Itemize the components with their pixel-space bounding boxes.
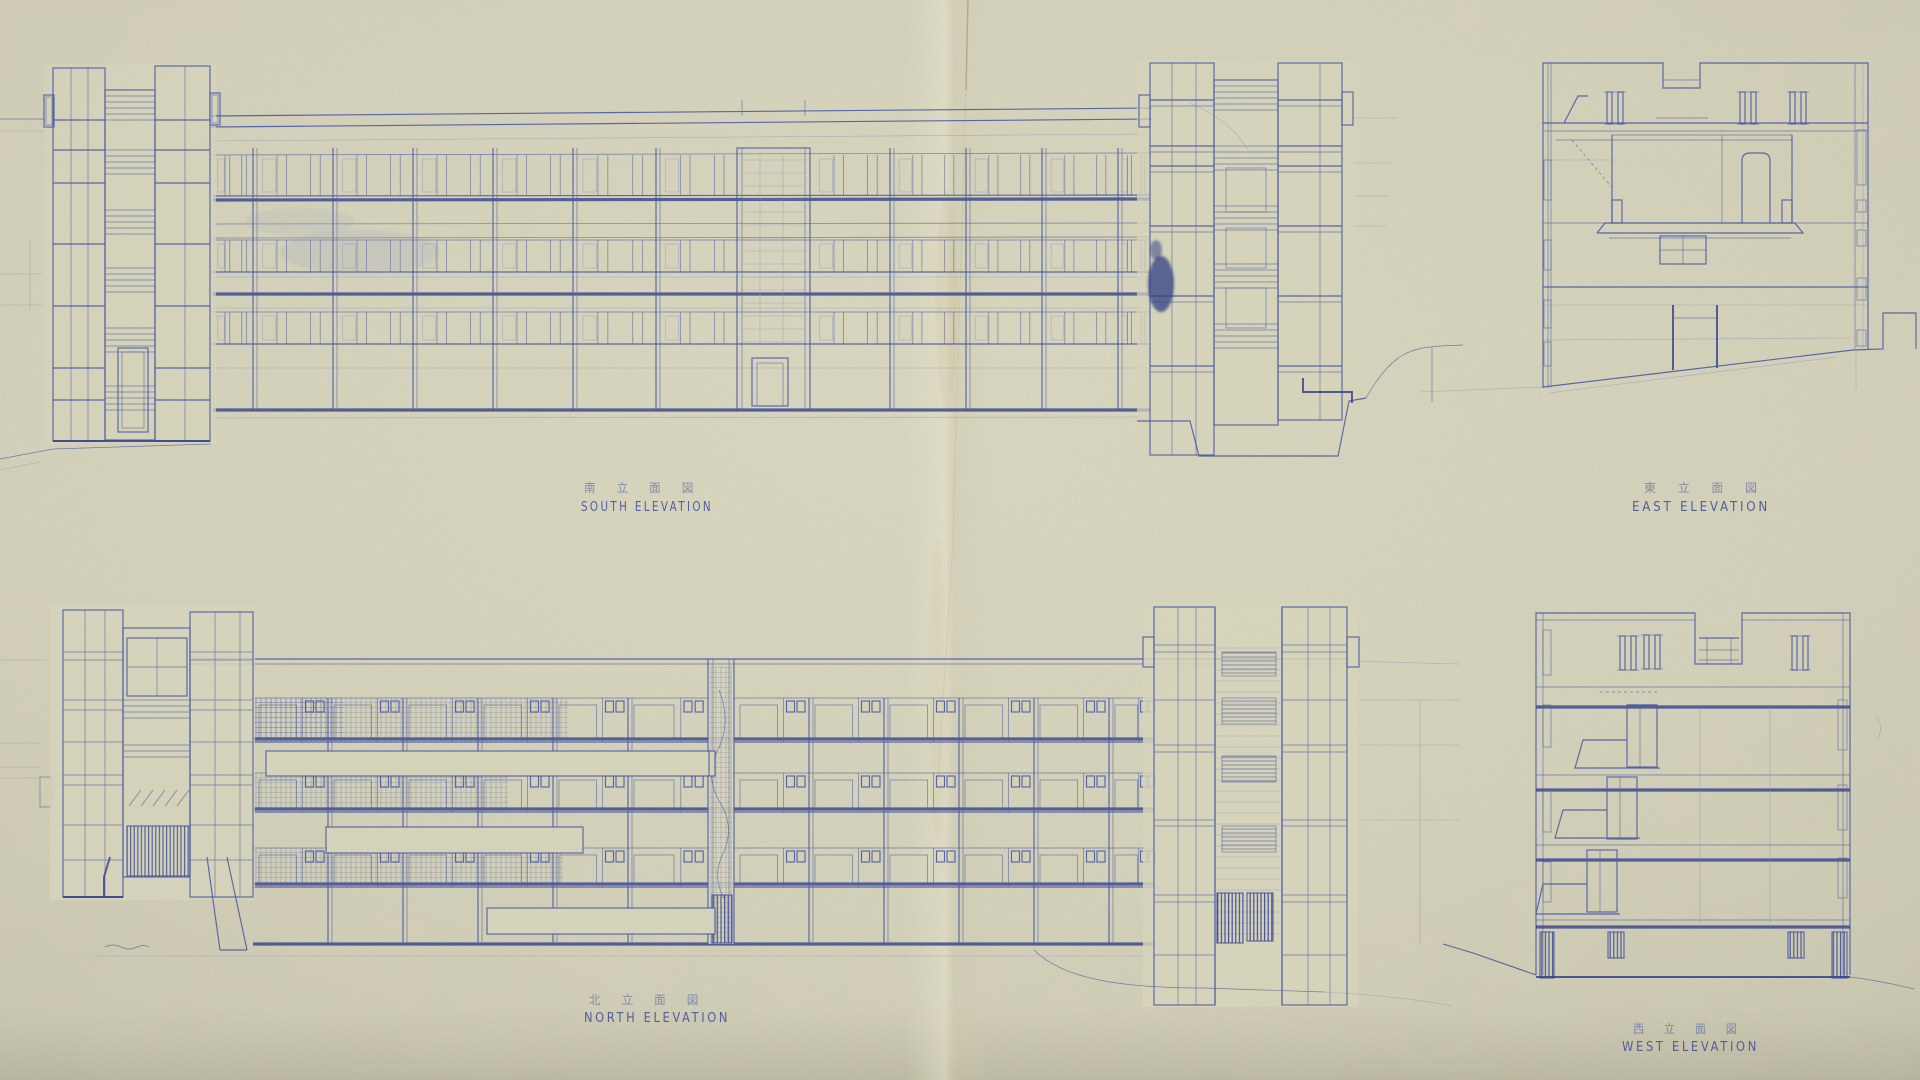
caption-west-jp: 西 立 面 図	[1633, 1021, 1745, 1036]
drawing-line	[487, 908, 715, 934]
caption-east-jp: 東 立 面 図	[1644, 480, 1766, 495]
elevations-drawing: 南 立 面 図 SOUTH ELEVATION 東 立 面 図 EAST ELE…	[0, 0, 1920, 1080]
drawing-line	[1137, 60, 1359, 445]
drawing-line	[1222, 652, 1276, 676]
drawing-line	[1247, 893, 1273, 941]
caption-north-en: NORTH ELEVATION	[584, 1011, 730, 1026]
drawing-line	[127, 826, 190, 876]
graphite-smudge-2	[245, 208, 355, 236]
drawing-line	[1222, 826, 1276, 852]
ink-blot-small	[1150, 240, 1162, 260]
caption-south-en: SOUTH ELEVATION	[581, 500, 713, 515]
drawing-line	[1788, 932, 1804, 958]
caption-north-jp: 北 立 面 図	[589, 992, 707, 1007]
drawing-line	[326, 827, 583, 853]
drawing-line	[266, 751, 715, 776]
drawing-line	[253, 698, 343, 742]
drawing-line	[1222, 698, 1276, 724]
blueprint-page: 南 立 面 図 SOUTH ELEVATION 東 立 面 図 EAST ELE…	[0, 0, 1920, 1080]
drawing-line	[253, 848, 563, 887]
drawing-line	[1217, 893, 1243, 943]
caption-east-en: EAST ELEVATION	[1632, 500, 1770, 515]
fold-crease-band	[905, 0, 995, 1080]
drawing-line	[1222, 756, 1276, 782]
caption-south-jp: 南 立 面 図	[584, 480, 702, 495]
caption-west-en: WEST ELEVATION	[1622, 1040, 1759, 1055]
ink-blot	[1148, 256, 1174, 312]
fold-stain-2	[929, 540, 947, 840]
graphite-smudge	[280, 230, 440, 274]
drawing-line	[1540, 932, 1554, 978]
drawing-line	[1608, 932, 1624, 958]
drawing-line	[1832, 932, 1847, 978]
drawing-line	[213, 199, 1150, 200]
drawing-line	[44, 64, 216, 444]
